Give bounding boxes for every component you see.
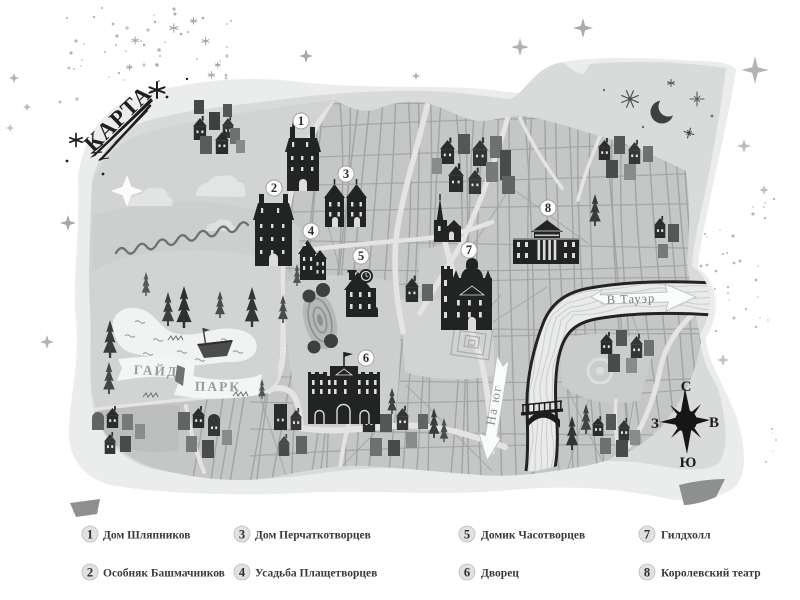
svg-text:1: 1 — [87, 527, 93, 541]
svg-text:Дом Шляпников: Дом Шляпников — [103, 530, 190, 542]
svg-text:8: 8 — [545, 201, 551, 215]
svg-text:ГАЙД: ГАЙД — [133, 362, 178, 379]
svg-text:5: 5 — [358, 249, 364, 263]
svg-text:4: 4 — [239, 565, 246, 579]
svg-text:ПАРК: ПАРК — [195, 379, 242, 395]
svg-text:Домик Часотворцев: Домик Часотворцев — [481, 530, 585, 542]
svg-text:С: С — [681, 379, 692, 395]
svg-text:7: 7 — [644, 527, 650, 541]
svg-text:Усадьба Плащетворцев: Усадьба Плащетворцев — [255, 568, 377, 580]
svg-text:8: 8 — [644, 565, 650, 579]
svg-text:Дворец: Дворец — [481, 568, 519, 580]
svg-text:Королевский театр: Королевский театр — [661, 568, 761, 580]
svg-text:1: 1 — [298, 114, 304, 128]
svg-text:В Тауэр: В Тауэр — [606, 291, 655, 307]
svg-text:2: 2 — [271, 181, 277, 195]
svg-text:Гилдхолл: Гилдхолл — [661, 530, 711, 542]
svg-text:7: 7 — [466, 243, 472, 257]
svg-text:Дом Перчаткотворцев: Дом Перчаткотворцев — [255, 530, 371, 542]
svg-text:3: 3 — [239, 527, 245, 541]
svg-text:6: 6 — [464, 565, 470, 579]
svg-text:3: 3 — [343, 167, 349, 181]
svg-text:5: 5 — [464, 527, 470, 541]
svg-text:4: 4 — [308, 224, 315, 238]
svg-text:В: В — [709, 415, 719, 431]
svg-text:З: З — [651, 416, 659, 432]
svg-text:Особняк Башмачников: Особняк Башмачников — [103, 568, 225, 580]
svg-text:6: 6 — [363, 351, 369, 365]
svg-text:Ю: Ю — [680, 455, 697, 471]
svg-text:2: 2 — [87, 565, 93, 579]
